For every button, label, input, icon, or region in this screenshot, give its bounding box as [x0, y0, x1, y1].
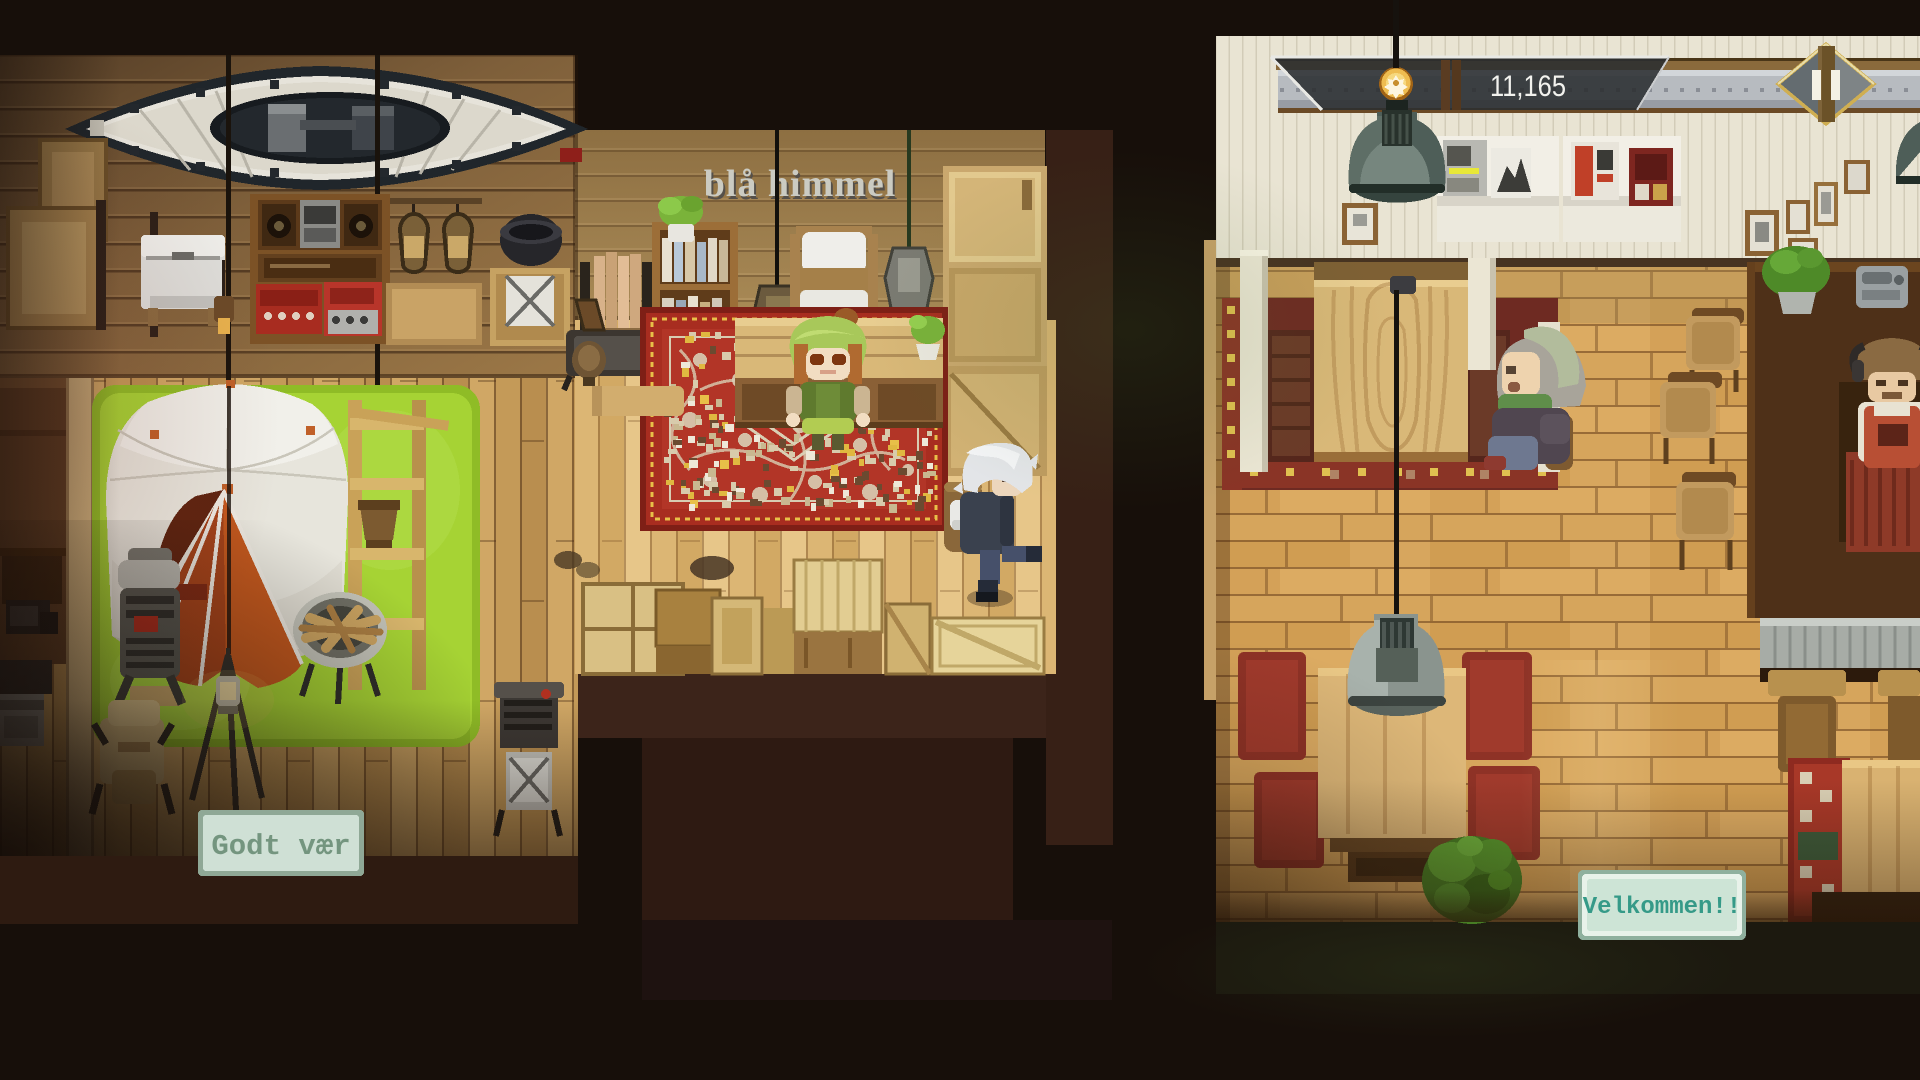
svg-text:11,165: 11,165 [1490, 70, 1566, 103]
svg-text:Godt vær: Godt vær [211, 830, 350, 863]
svg-text:Velkommen!!: Velkommen!! [1583, 894, 1741, 921]
svg-text:blå himmel: blå himmel [704, 163, 897, 205]
